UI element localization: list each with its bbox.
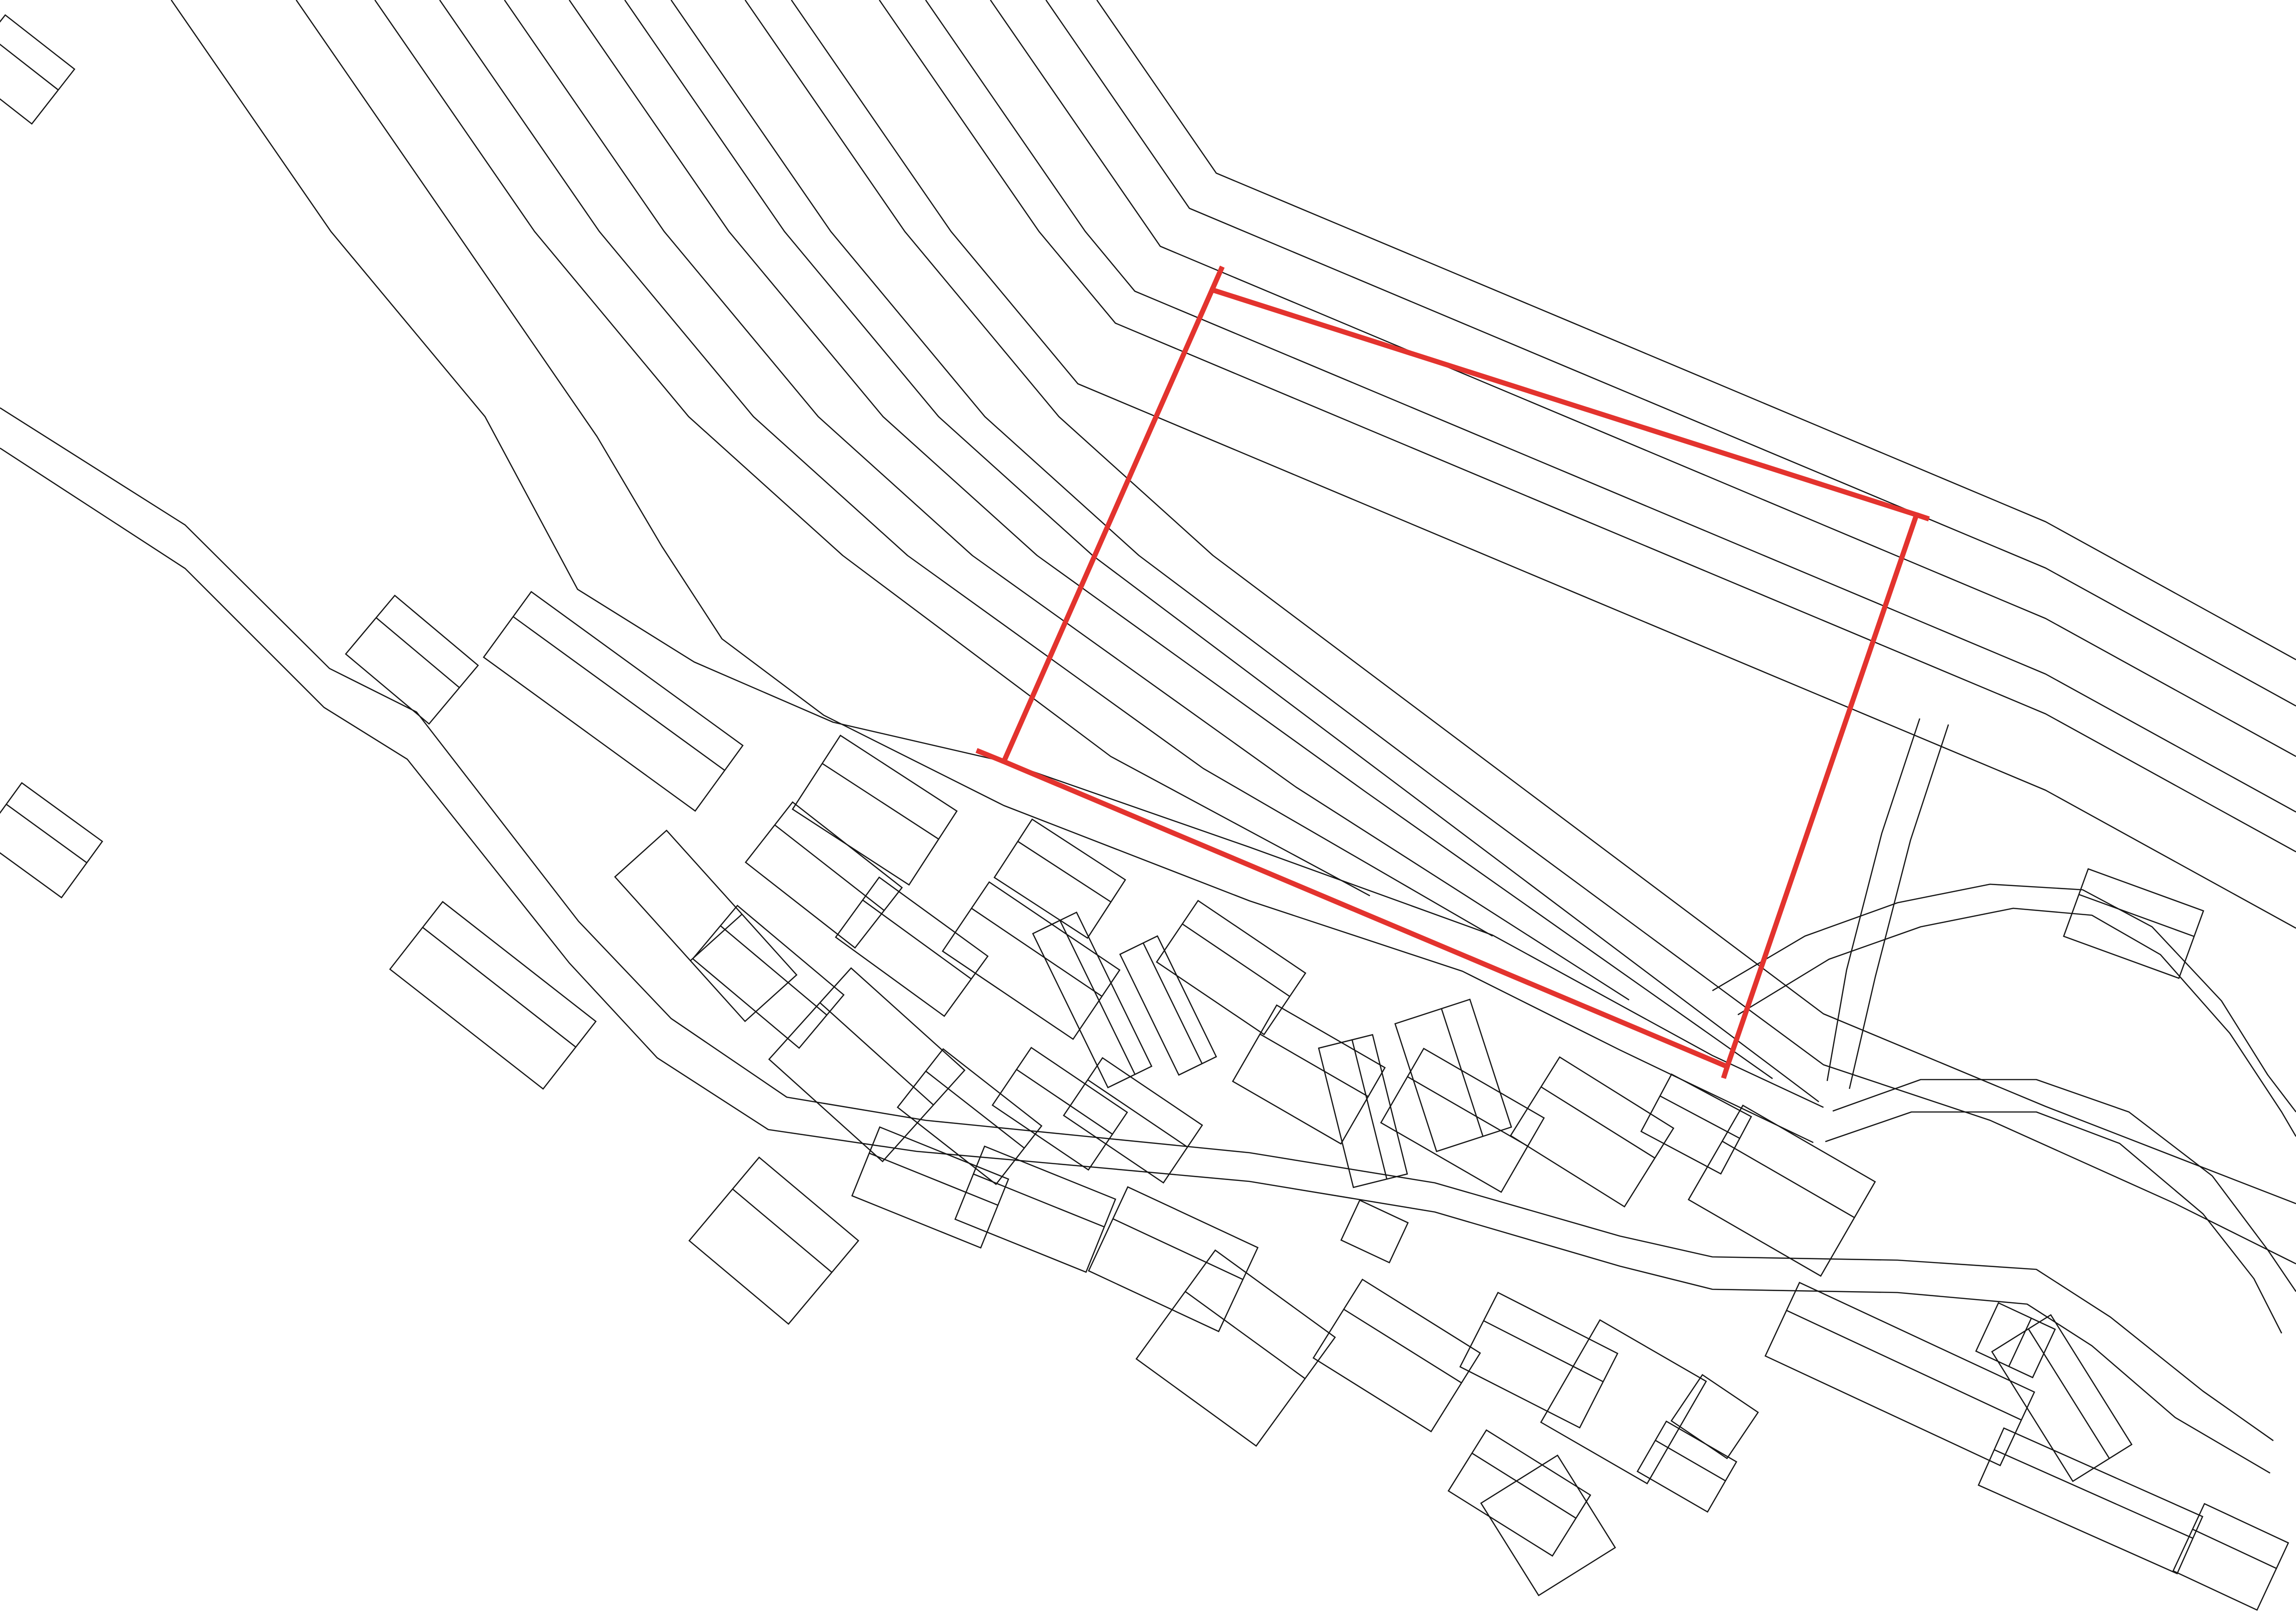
building-divider — [1484, 1321, 1603, 1382]
building-divider — [2028, 1329, 2109, 1459]
building-footprint-30 — [1313, 1280, 1480, 1432]
building-footprint-32 — [1541, 1320, 1706, 1483]
building-divider — [926, 1071, 1024, 1148]
building-footprint-5 — [0, 783, 102, 898]
building-footprint-45 — [1341, 1200, 1408, 1263]
building-footprint-42 — [2064, 869, 2203, 978]
parcel-corner-tick — [1916, 515, 1929, 519]
building-footprint-6 — [793, 736, 957, 885]
building-footprint-23 — [1319, 1035, 1407, 1187]
building-divider — [1722, 1141, 1854, 1218]
building-divider — [2009, 1318, 2032, 1367]
main-road-lower-edge — [0, 448, 2270, 1473]
building-footprint-26 — [1511, 1057, 1674, 1206]
contour-08 — [671, 0, 2296, 1264]
building-footprints — [0, 15, 2288, 1610]
building-footprint-7 — [746, 802, 902, 948]
building-footprint-3 — [484, 592, 743, 811]
contour-boundary-lower — [296, 0, 1813, 1143]
contour-06 — [569, 0, 1773, 1079]
building-divider — [1060, 920, 1135, 1074]
building-footprint-39 — [1992, 1315, 2132, 1481]
building-divider — [1260, 1034, 1369, 1097]
building-footprint-11 — [769, 968, 965, 1162]
branch-road-upper-edge — [1833, 1080, 2296, 1292]
building-divider — [1442, 1009, 1483, 1137]
building-divider — [1113, 1219, 1243, 1280]
contour-13 — [990, 0, 2296, 756]
contour-09 — [745, 0, 2296, 1204]
building-footprint-17 — [992, 1048, 1127, 1170]
building-footprint-1 — [0, 15, 75, 124]
building-footprint-14 — [943, 882, 1120, 1039]
building-divider — [733, 1189, 832, 1272]
building-divider — [1018, 842, 1111, 902]
building-divider — [1143, 943, 1202, 1064]
building-footprint-2 — [346, 595, 478, 724]
building-divider — [820, 1003, 933, 1105]
building-footprint-33 — [1671, 1375, 1758, 1459]
building-footprint-35 — [1449, 1430, 1591, 1556]
building-footprint-20 — [689, 1157, 859, 1324]
building-footprint-19 — [1157, 900, 1306, 1034]
building-footprint-8 — [615, 831, 797, 1021]
building-divider — [863, 900, 971, 979]
building-footprint-4 — [390, 902, 596, 1089]
building-divider — [1016, 1069, 1112, 1134]
building-footprint-28 — [1688, 1106, 1875, 1276]
building-divider — [1994, 1450, 2193, 1538]
contour-15 — [1097, 0, 2296, 660]
building-divider — [0, 36, 58, 90]
building-footprint-37 — [1765, 1282, 2034, 1465]
building-divider — [2193, 1529, 2277, 1568]
building-divider — [1185, 1292, 1305, 1379]
building-footprint-10 — [836, 877, 988, 1016]
path-east-lower-edge — [1738, 908, 2296, 1137]
building-footprint-16 — [1120, 936, 1216, 1075]
parcel-boundary — [977, 267, 1929, 1078]
building-divider — [1655, 1440, 1726, 1481]
building-footprint-41 — [2173, 1504, 2289, 1610]
building-footprint-27 — [1641, 1074, 1751, 1174]
site-plan-map — [0, 0, 2296, 1624]
path-east-upper-edge — [1712, 884, 2296, 1112]
contour-07 — [625, 0, 1819, 1102]
track-north-east-edge — [1849, 725, 1948, 1089]
building-divider — [1407, 1077, 1528, 1146]
building-divider — [1786, 1311, 2022, 1420]
contour-lines — [171, 0, 2296, 1264]
parcel-corner-tick — [1724, 1067, 1727, 1078]
building-footprint-43 — [1395, 999, 1511, 1151]
building-divider — [1182, 924, 1290, 997]
building-divider — [1088, 1080, 1188, 1147]
contour-boundary-upper — [171, 0, 1823, 1107]
building-divider — [376, 618, 460, 687]
contour-04 — [440, 0, 1493, 936]
building-footprint-44 — [1233, 1005, 1385, 1144]
contour-10 — [791, 0, 2296, 928]
building-footprint-36 — [1481, 1455, 1615, 1596]
building-divider — [1352, 1040, 1387, 1179]
building-footprint-9 — [693, 906, 844, 1048]
building-divider — [1541, 1087, 1655, 1158]
building-divider — [1472, 1453, 1576, 1518]
building-divider — [721, 926, 827, 1015]
contour-14 — [1046, 0, 2296, 706]
building-divider — [1344, 1309, 1462, 1383]
track-north-west-edge — [1827, 718, 1920, 1081]
building-footprint-31 — [1460, 1293, 1618, 1428]
building-footprint-29 — [1136, 1250, 1335, 1446]
contour-03 — [375, 0, 1370, 896]
building-divider — [822, 763, 939, 839]
building-divider — [513, 617, 725, 770]
building-footprint-34 — [1637, 1421, 1736, 1512]
map-viewport — [0, 0, 2296, 1624]
building-divider — [6, 804, 87, 862]
building-footprint-40 — [1979, 1428, 2203, 1574]
building-footprint-18 — [1064, 1058, 1202, 1183]
building-footprint-24 — [1089, 1187, 1257, 1331]
